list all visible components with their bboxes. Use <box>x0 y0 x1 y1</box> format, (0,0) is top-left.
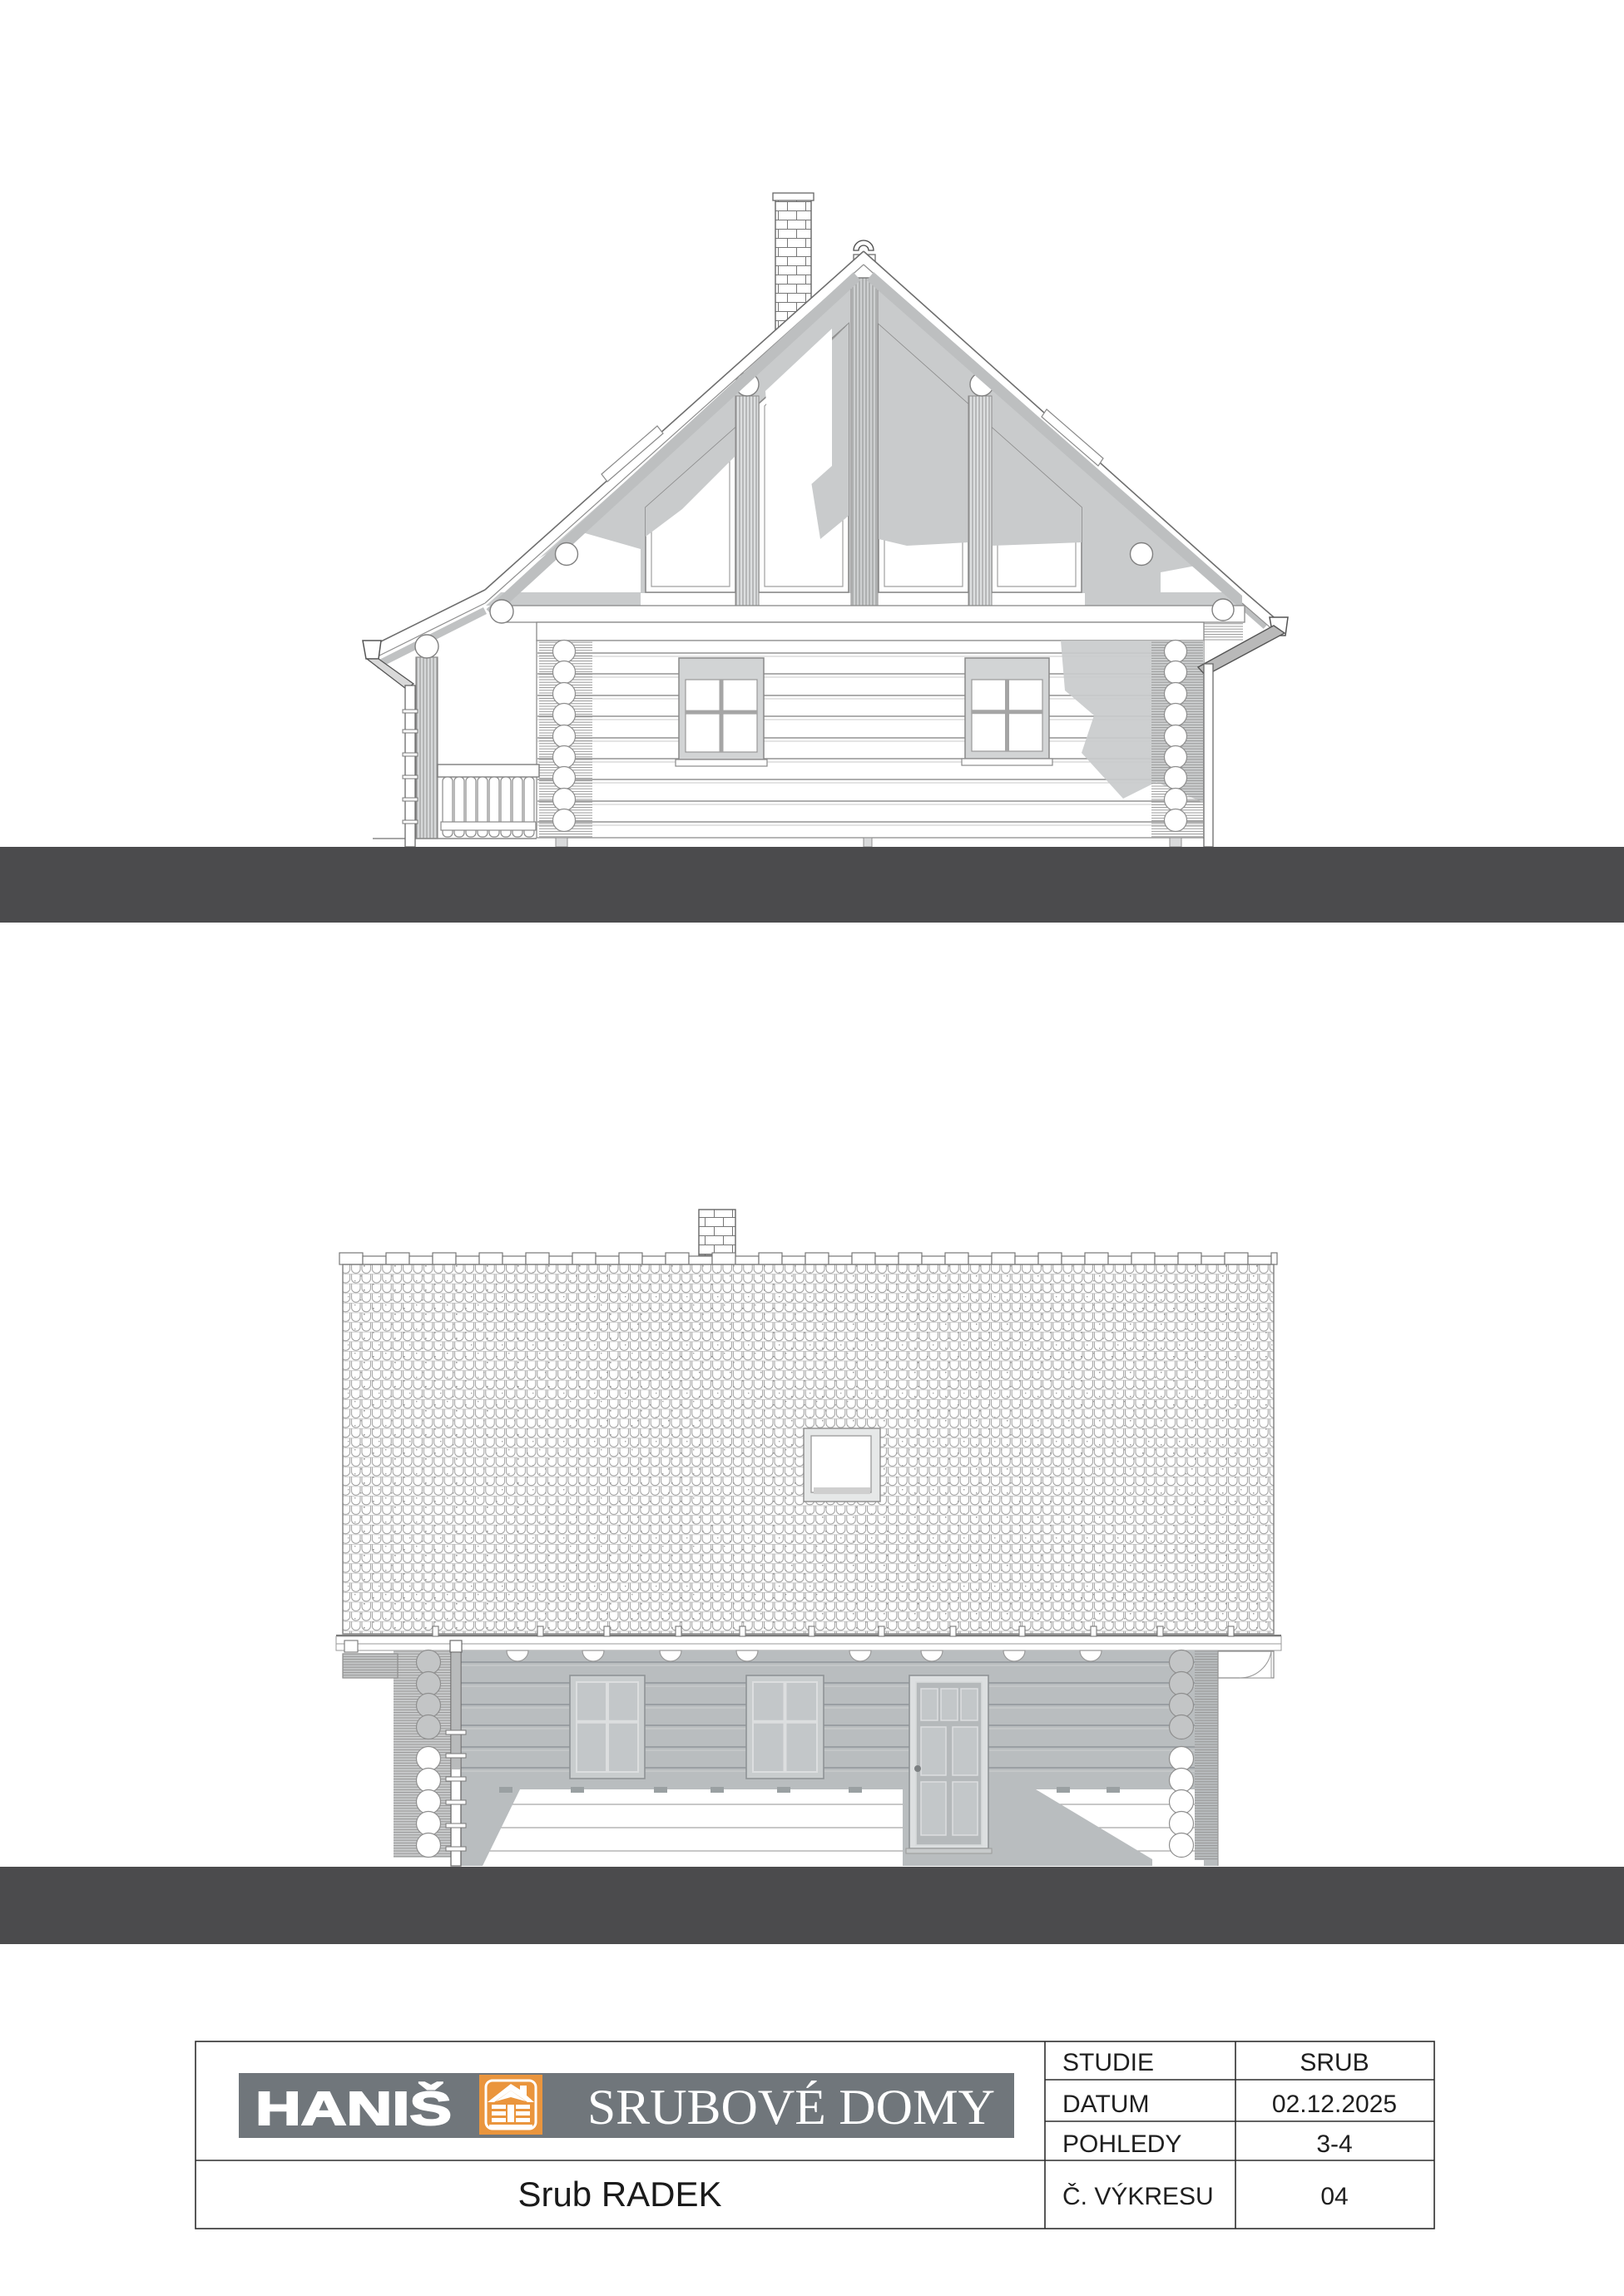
svg-text:HANIŠ: HANIŠ <box>255 2081 452 2135</box>
svg-text:04: 04 <box>1320 2183 1348 2210</box>
svg-text:SRUBOVÉ DOMY: SRUBOVÉ DOMY <box>587 2080 995 2135</box>
svg-text:STUDIE: STUDIE <box>1062 2049 1154 2076</box>
svg-text:POHLEDY: POHLEDY <box>1062 2130 1181 2158</box>
svg-text:DATUM: DATUM <box>1062 2091 1149 2118</box>
svg-text:SRUB: SRUB <box>1300 2049 1369 2076</box>
svg-text:Č. VÝKRESU: Č. VÝKRESU <box>1062 2182 1214 2210</box>
svg-text:3-4: 3-4 <box>1316 2130 1352 2158</box>
svg-text:Srub RADEK: Srub RADEK <box>517 2175 721 2214</box>
svg-text:02.12.2025: 02.12.2025 <box>1272 2091 1397 2118</box>
